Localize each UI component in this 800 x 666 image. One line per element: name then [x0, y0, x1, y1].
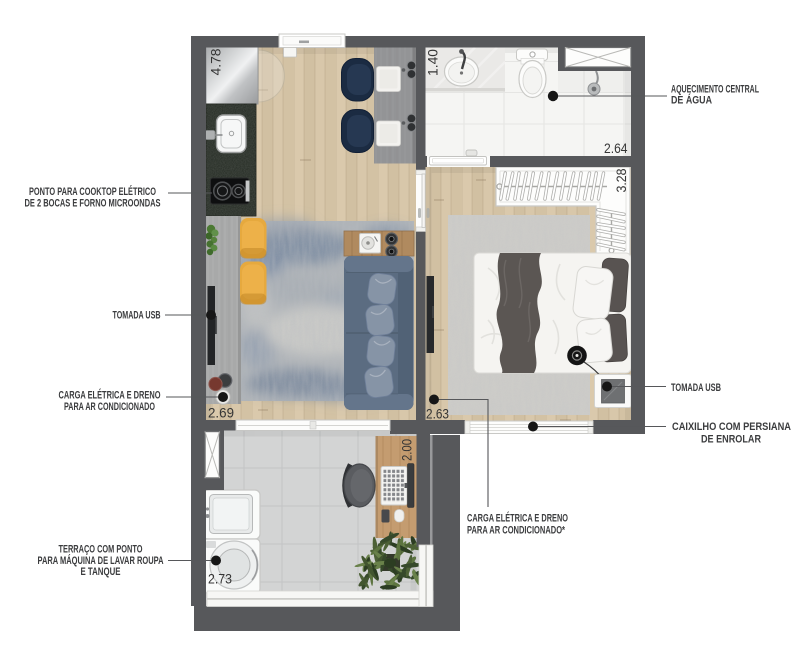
svg-text:PARA AR CONDICIONADO: PARA AR CONDICIONADO: [64, 401, 155, 413]
svg-text:PONTO PARA COOKTOP ELÉTRICO: PONTO PARA COOKTOP ELÉTRICO: [29, 185, 156, 198]
svg-text:2.63: 2.63: [426, 407, 449, 422]
svg-text:1.40: 1.40: [426, 49, 441, 76]
svg-text:3.28: 3.28: [614, 169, 629, 193]
svg-text:2.00: 2.00: [400, 439, 415, 461]
svg-text:2.69: 2.69: [208, 406, 234, 421]
svg-text:DE ENROLAR: DE ENROLAR: [701, 434, 761, 446]
svg-text:DE ÁGUA: DE ÁGUA: [671, 94, 712, 107]
svg-text:CARGA ELÉTRICA E DRENO: CARGA ELÉTRICA E DRENO: [467, 512, 568, 525]
svg-text:PARA AR CONDICIONADO*: PARA AR CONDICIONADO*: [467, 525, 565, 537]
svg-text:4.78: 4.78: [209, 49, 224, 76]
svg-text:2.64: 2.64: [604, 141, 628, 156]
svg-text:CARGA ELÉTRICA E DRENO: CARGA ELÉTRICA E DRENO: [59, 389, 161, 402]
svg-text:DE 2 BOCAS E FORNO MICROONDAS: DE 2 BOCAS E FORNO MICROONDAS: [25, 198, 161, 210]
svg-text:2.73: 2.73: [208, 572, 232, 587]
svg-text:E TANQUE: E TANQUE: [81, 566, 121, 578]
svg-text:AQUECIMENTO CENTRAL: AQUECIMENTO CENTRAL: [671, 83, 759, 95]
svg-text:CAIXILHO COM PERSIANA: CAIXILHO COM PERSIANA: [672, 421, 791, 433]
svg-text:TOMADA USB: TOMADA USB: [113, 310, 161, 322]
svg-text:TOMADA USB: TOMADA USB: [671, 382, 721, 394]
svg-text:TERRAÇO COM PONTO: TERRAÇO COM PONTO: [59, 544, 143, 556]
